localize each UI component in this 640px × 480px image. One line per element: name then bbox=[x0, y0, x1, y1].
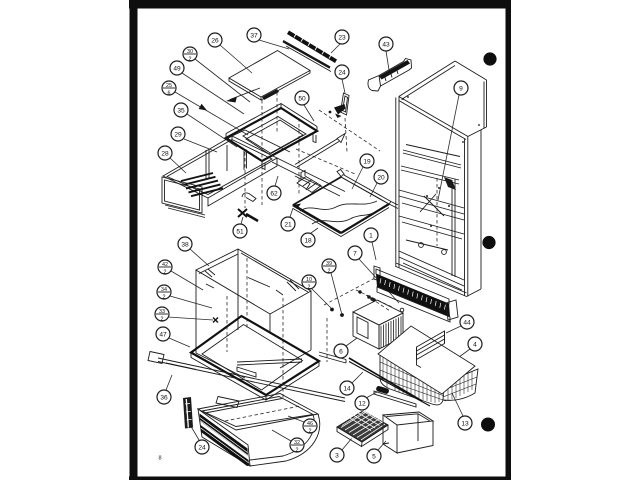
svg-text:19: 19 bbox=[363, 158, 371, 165]
svg-text:34: 34 bbox=[161, 287, 167, 293]
svg-text:14: 14 bbox=[343, 385, 351, 392]
svg-text:2: 2 bbox=[309, 429, 312, 435]
svg-text:3: 3 bbox=[335, 452, 339, 459]
svg-text:4: 4 bbox=[473, 341, 477, 348]
svg-text:46: 46 bbox=[307, 421, 313, 427]
svg-text:10: 10 bbox=[306, 277, 312, 283]
svg-text:13: 13 bbox=[461, 420, 469, 427]
svg-text:24: 24 bbox=[338, 69, 346, 76]
svg-text:24: 24 bbox=[198, 444, 206, 451]
svg-text:43: 43 bbox=[382, 41, 390, 48]
svg-text:50: 50 bbox=[298, 95, 306, 102]
svg-text:9: 9 bbox=[459, 85, 463, 92]
svg-text:47: 47 bbox=[159, 331, 167, 338]
svg-text:2: 2 bbox=[308, 285, 311, 291]
svg-text:39: 39 bbox=[326, 261, 332, 267]
svg-text:2: 2 bbox=[328, 269, 331, 275]
svg-text:7: 7 bbox=[353, 250, 357, 257]
svg-text:20: 20 bbox=[377, 174, 385, 181]
svg-text:49: 49 bbox=[173, 65, 181, 72]
svg-text:5: 5 bbox=[372, 453, 376, 460]
svg-text:28: 28 bbox=[161, 150, 169, 157]
svg-text:37: 37 bbox=[250, 32, 258, 39]
svg-text:33: 33 bbox=[159, 309, 165, 315]
svg-text:35: 35 bbox=[177, 107, 185, 114]
svg-text:2: 2 bbox=[163, 295, 166, 301]
svg-text:2: 2 bbox=[161, 317, 164, 323]
svg-text:32: 32 bbox=[294, 440, 300, 446]
svg-text:44: 44 bbox=[463, 319, 471, 326]
svg-text:6: 6 bbox=[339, 348, 343, 355]
svg-text:23: 23 bbox=[338, 34, 346, 41]
svg-text:30: 30 bbox=[187, 49, 193, 55]
svg-text:12: 12 bbox=[358, 400, 366, 407]
svg-text:51: 51 bbox=[236, 228, 244, 235]
svg-text:21: 21 bbox=[284, 221, 292, 228]
svg-text:25: 25 bbox=[166, 83, 172, 89]
svg-text:8: 8 bbox=[159, 456, 162, 462]
svg-text:6: 6 bbox=[168, 91, 171, 97]
svg-text:2: 2 bbox=[296, 448, 299, 454]
svg-text:62: 62 bbox=[270, 190, 278, 197]
svg-text:2: 2 bbox=[189, 57, 192, 63]
svg-text:38: 38 bbox=[181, 241, 189, 248]
svg-text:36: 36 bbox=[160, 394, 168, 401]
svg-text:42: 42 bbox=[162, 262, 168, 268]
svg-text:2: 2 bbox=[164, 270, 167, 276]
svg-text:1: 1 bbox=[369, 232, 373, 239]
svg-text:29: 29 bbox=[174, 131, 182, 138]
svg-text:26: 26 bbox=[211, 37, 219, 44]
svg-text:18: 18 bbox=[304, 237, 312, 244]
